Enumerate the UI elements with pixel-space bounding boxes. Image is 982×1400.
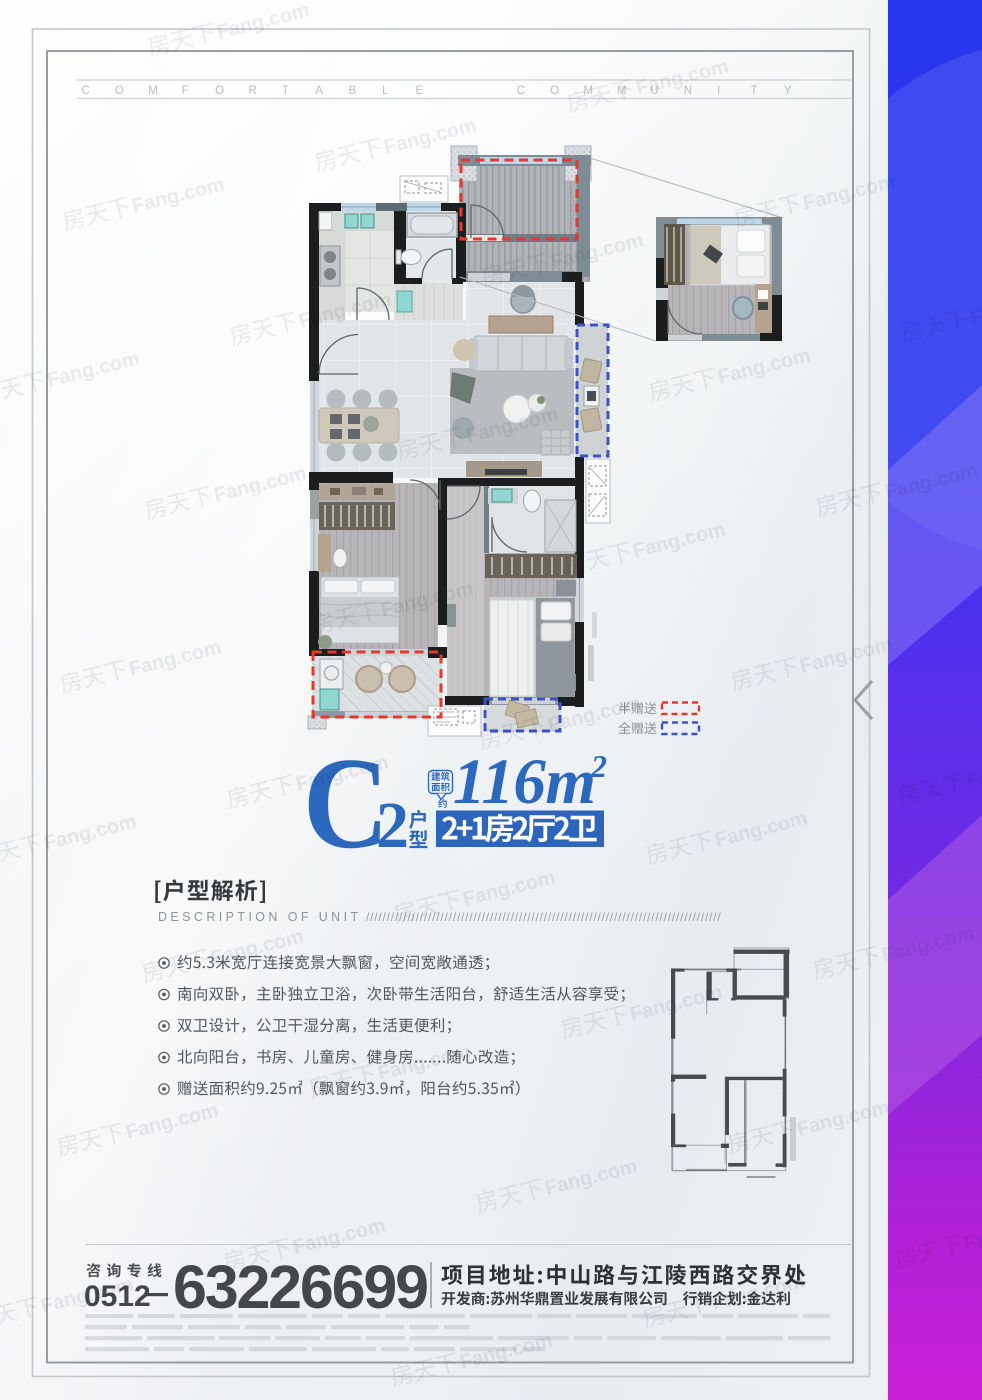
svg-text:DESCRIPTION OF UNIT: DESCRIPTION OF UNIT bbox=[158, 910, 362, 924]
svg-text:63226699: 63226699 bbox=[173, 1253, 427, 1321]
svg-text:2: 2 bbox=[376, 789, 409, 862]
svg-text:2: 2 bbox=[590, 748, 607, 784]
svg-text:116m: 116m bbox=[453, 746, 595, 818]
svg-text://////////////////////////////: ////////////////////////////////////////… bbox=[366, 910, 722, 924]
